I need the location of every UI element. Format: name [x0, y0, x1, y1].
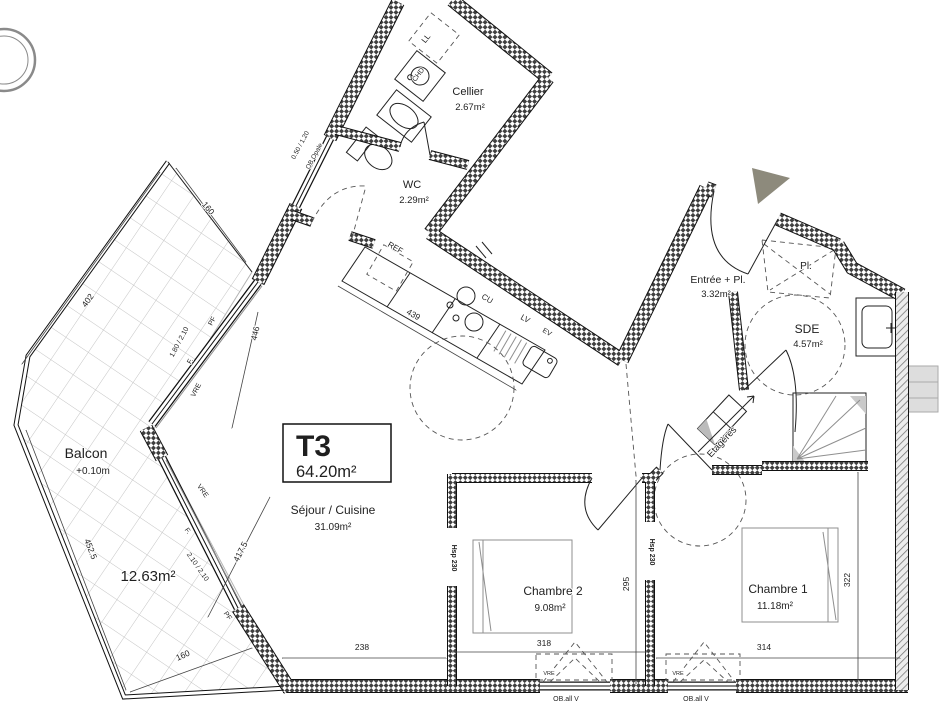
room-label-entree-area: 3.32m² [701, 289, 731, 300]
room-label-chambre2-name: Chambre 2 [523, 584, 583, 598]
closet-pl [762, 240, 836, 298]
utility-sink [377, 90, 431, 142]
kitchen-break-mark [476, 242, 492, 258]
room-label-sde-name: SDE [795, 322, 820, 336]
accessibility-circles [410, 295, 845, 546]
exterior-steps [908, 366, 938, 412]
dimension-label-d318: 318 [537, 638, 551, 648]
entrance-marker-triangle [752, 168, 790, 204]
room-label-cellier-area: 2.67m² [455, 102, 485, 113]
fixture-label-hsp-1: Hsp 230 [450, 545, 457, 572]
room-label-entree-name: Entrée + Pl. [690, 274, 745, 286]
fixture-label-ev: EV [541, 327, 553, 338]
dimension-label-d322: 322 [842, 573, 852, 587]
fixture-label-lv: LV [519, 313, 532, 326]
dimension-label-d295: 295 [621, 577, 631, 591]
room-label-balcon-level: +0.10m [76, 466, 110, 477]
room-label-chambre1-area: 11.18m² [757, 601, 794, 612]
dish-rack [494, 331, 527, 364]
fixture-label-cu: CU [480, 292, 495, 306]
kitchen-sink [522, 345, 559, 379]
window-label-wc-win-dim: 0.50 / 1.20 [290, 130, 311, 161]
room-label-sde-area: 4.57m² [793, 339, 823, 350]
dimension-label-d238: 238 [355, 642, 369, 652]
fixture-label-ref: REF [386, 240, 404, 256]
room-label-wc-area: 2.29m² [399, 195, 429, 206]
vanity [856, 298, 900, 356]
fixture-label-ll: LL [420, 32, 433, 45]
site-circle [0, 29, 35, 91]
sde-door [744, 350, 796, 432]
unit-area: 64.20m² [296, 463, 357, 481]
floor-plan: T3 64.20m² Séjour / Cuisine31.09m²Balcon… [0, 0, 940, 705]
room-label-balcon-area: 12.63m² [120, 568, 175, 585]
unit-type: T3 [296, 430, 331, 463]
floor-plan-page: T3 64.20m² Séjour / Cuisine31.09m²Balcon… [0, 0, 940, 705]
room-label-sejour-name: Séjour / Cuisine [291, 503, 376, 517]
shower [793, 393, 866, 463]
window-label-bw2-vre: VRE [672, 671, 684, 677]
dimension-label-d417: 417.5 [231, 540, 250, 564]
fixture-label-hsp-2: Hsp 230 [648, 539, 655, 566]
room-label-sejour-area: 31.09m² [315, 522, 352, 533]
window-label-bw1-vre: VRE [543, 671, 555, 677]
window-label-w1-vre: VRE [190, 382, 203, 398]
washing-machine [409, 13, 460, 64]
room-label-wc-name: WC [403, 179, 421, 191]
chambre2-door [585, 478, 642, 530]
room-label-cellier-name: Cellier [452, 86, 484, 98]
window-label-bw1: OB.all V [553, 696, 579, 703]
room-label-etageres: Etagères [705, 424, 739, 459]
room-label-chambre1-name: Chambre 1 [748, 582, 808, 596]
room-label-placard: Pl. [800, 261, 812, 272]
room-label-balcon-name: Balcon [65, 445, 108, 461]
entrance-door [711, 191, 778, 274]
dimension-label-d314: 314 [757, 642, 771, 652]
room-label-chambre2-area: 9.08m² [534, 603, 566, 614]
unit-label-box: T3 64.20m² [283, 424, 391, 482]
dimension-label-d446: 446 [249, 325, 262, 341]
window-label-bw2: OB.all V [683, 696, 709, 703]
wc-door [312, 186, 366, 238]
window-label-w2-vre: VRE [195, 483, 209, 499]
dimension-label-d439: 439 [405, 307, 423, 323]
